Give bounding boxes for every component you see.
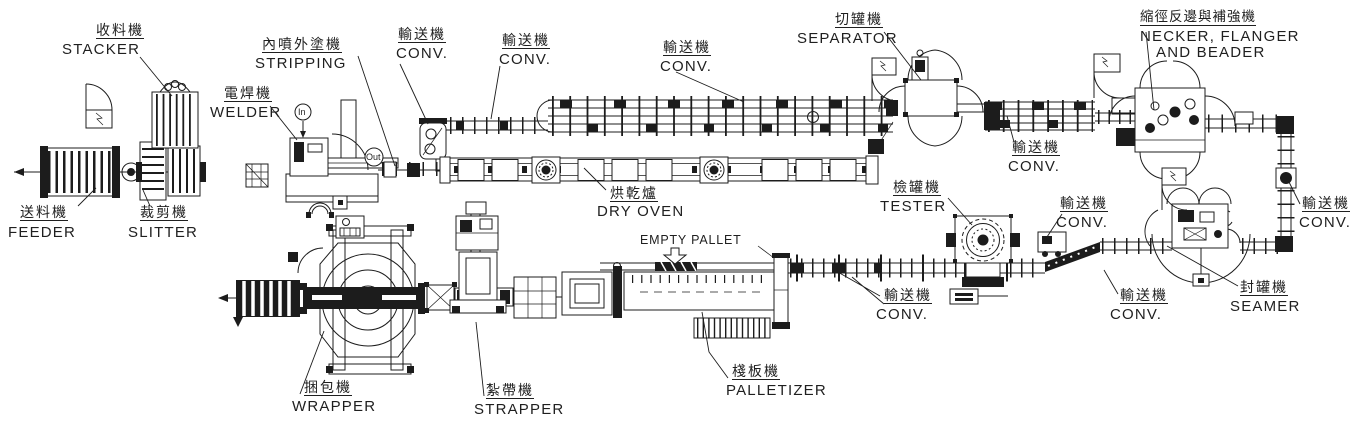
strapper-label-zh: 紮帶機	[486, 383, 534, 399]
conveyor8-label-en: CONV.	[1110, 307, 1162, 322]
factory-layout-diagram: 收料機 STACKER 送料機 FEEDER 裁剪機 SLITTER 內噴外塗機…	[0, 0, 1350, 442]
conveyor7-label-en: CONV.	[876, 307, 928, 322]
conveyor2-label-en: CONV.	[499, 52, 551, 67]
conveyor3-label-zh: 輸送機	[663, 40, 711, 56]
conveyor4-label-zh: 輸送機	[1012, 140, 1060, 156]
strapper-drawing	[450, 202, 513, 313]
necker-label-en2: AND BEADER	[1156, 45, 1266, 60]
palletizer-label-zh: 棧板機	[732, 364, 780, 380]
conveyor1-label-zh: 輸送機	[398, 27, 446, 43]
conveyor3-label-en: CONV.	[660, 59, 712, 74]
feeder-label-en: FEEDER	[8, 225, 76, 240]
conveyor5-label-zh: 輸送機	[1302, 196, 1350, 212]
palletizer-drawing	[514, 246, 790, 338]
conveyor6-label-zh: 輸送機	[1060, 196, 1108, 212]
necker-flanger-beader-drawing	[1094, 54, 1284, 179]
conveyor2-label-zh: 輸送機	[502, 33, 550, 49]
stripping-label-zh: 內噴外塗機	[262, 37, 342, 53]
welder-label-en: WELDER	[210, 105, 281, 120]
necker-label-zh: 縮徑反邊與補強機	[1140, 10, 1256, 26]
conveyor7-label-zh: 輸送機	[884, 288, 932, 304]
right-vertical-conveyor-drawing	[1240, 116, 1296, 252]
feeder-label-zh: 送料機	[20, 205, 68, 221]
conveyor6-label-en: CONV.	[1056, 215, 1108, 230]
conveyor1-label-en: CONV.	[396, 46, 448, 61]
flow-in-label: In	[298, 108, 306, 117]
feeder-slitter-stacker-drawing	[14, 81, 206, 201]
welder-label-zh: 電焊機	[224, 86, 272, 102]
tester-label-zh: 檢罐機	[893, 180, 941, 196]
wrapper-label-en: WRAPPER	[292, 399, 376, 414]
flow-out-label: Out	[366, 153, 381, 162]
seamer-label-en: SEAMER	[1230, 299, 1301, 314]
necker-label-en1: NECKER, FLANGER	[1140, 29, 1300, 44]
stacker-label-en: STACKER	[62, 42, 140, 57]
separator-label-en: SEPARATOR	[797, 31, 898, 46]
tester-label-en: TESTER	[880, 199, 946, 214]
palletizer-label-en: PALLETIZER	[726, 383, 827, 398]
wrapper-label-zh: 捆包機	[304, 380, 352, 396]
conveyor5-label-en: CONV.	[1299, 215, 1350, 230]
seamer-drawing	[1145, 168, 1250, 286]
stacker-label-zh: 收料機	[96, 23, 144, 39]
separator-label-zh: 切罐機	[835, 12, 883, 28]
slitter-label-en: SLITTER	[128, 225, 198, 240]
tester-drawing	[946, 214, 1020, 304]
dry-oven-label-zh: 烘乾爐	[610, 186, 658, 202]
empty-pallet-label: EMPTY PALLET	[640, 234, 742, 247]
strapper-label-en: STRAPPER	[474, 402, 564, 417]
stripping-label-en: STRIPPING	[255, 56, 347, 71]
empty-pallet-arrow	[664, 248, 686, 264]
conveyor4-label-en: CONV.	[1008, 159, 1060, 174]
seamer-label-zh: 封罐機	[1240, 280, 1288, 296]
conveyor8-label-zh: 輸送機	[1120, 288, 1168, 304]
slitter-label-zh: 裁剪機	[140, 205, 188, 221]
dry-oven-label-en: DRY OVEN	[597, 204, 684, 219]
top-conveyor-drawing	[446, 100, 898, 132]
wrapper-drawing	[218, 216, 425, 374]
